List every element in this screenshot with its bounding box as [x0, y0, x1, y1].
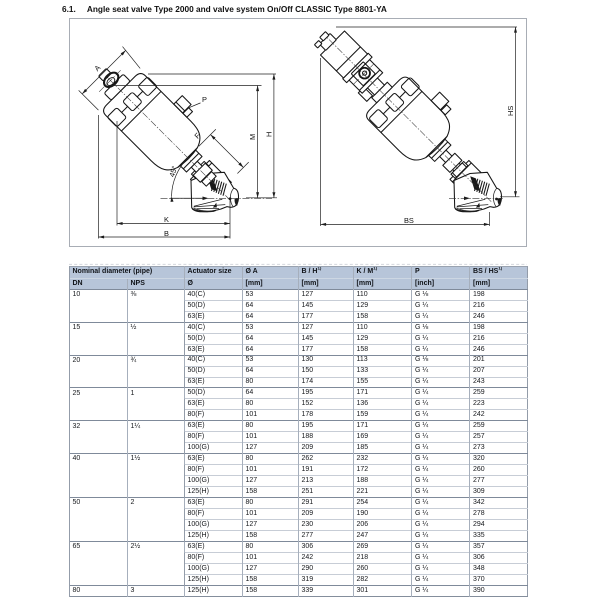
svg-text:HS: HS: [506, 106, 515, 116]
svg-text:BS: BS: [404, 216, 414, 225]
svg-text:H: H: [264, 132, 273, 137]
svg-text:B: B: [164, 229, 169, 238]
svg-text:P: P: [202, 95, 207, 104]
svg-text:K: K: [164, 215, 169, 224]
svg-text:M: M: [248, 134, 257, 140]
svg-text:A: A: [92, 63, 102, 73]
